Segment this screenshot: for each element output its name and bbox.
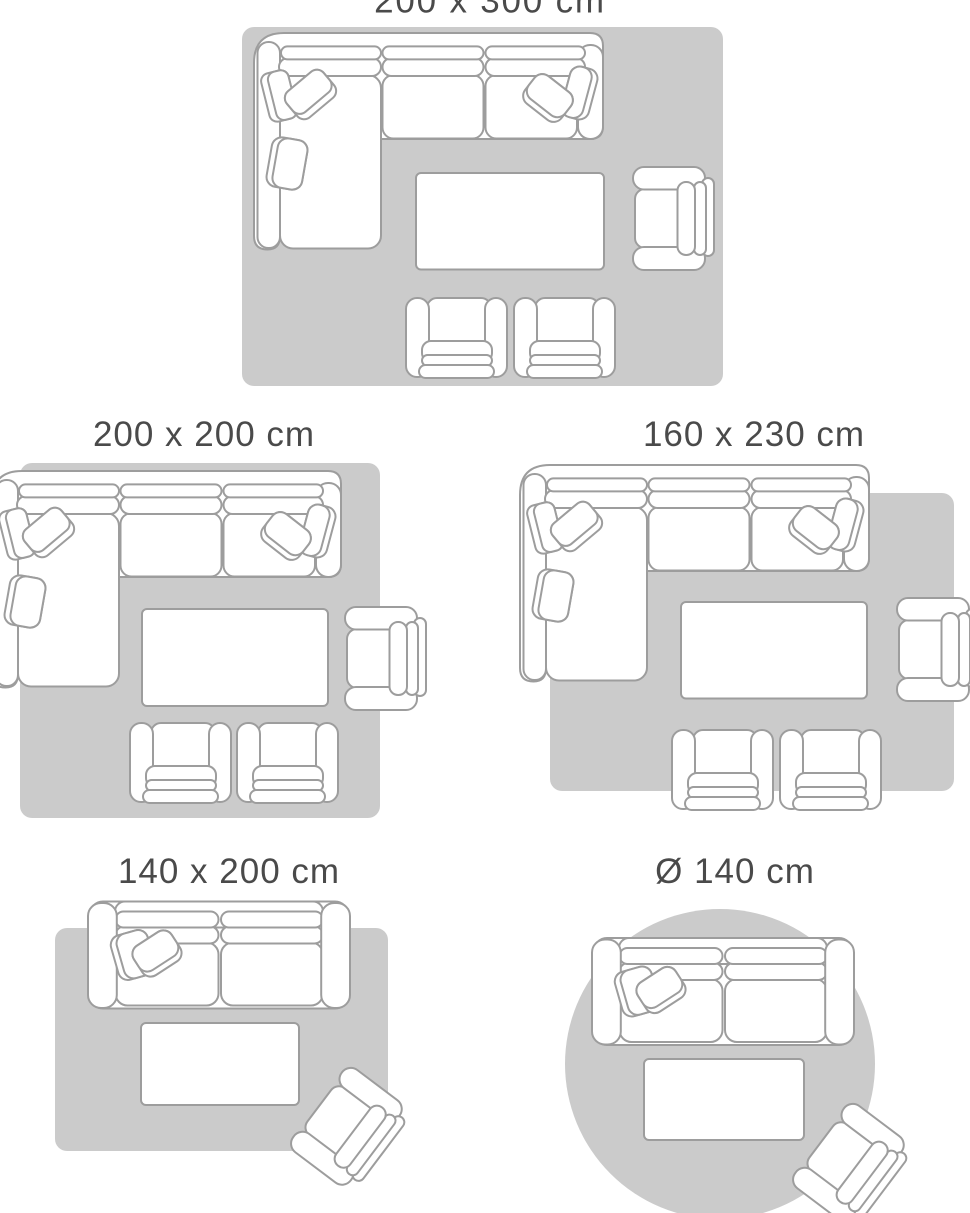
svg-text:Ø 140 cm: Ø 140 cm: [655, 852, 815, 891]
svg-text:140 x 200 cm: 140 x 200 cm: [118, 852, 340, 891]
svg-text:200 x 300 cm: 200 x 300 cm: [374, 0, 606, 21]
svg-text:160 x 230 cm: 160 x 230 cm: [643, 415, 865, 454]
svg-text:200 x 200 cm: 200 x 200 cm: [93, 415, 315, 454]
